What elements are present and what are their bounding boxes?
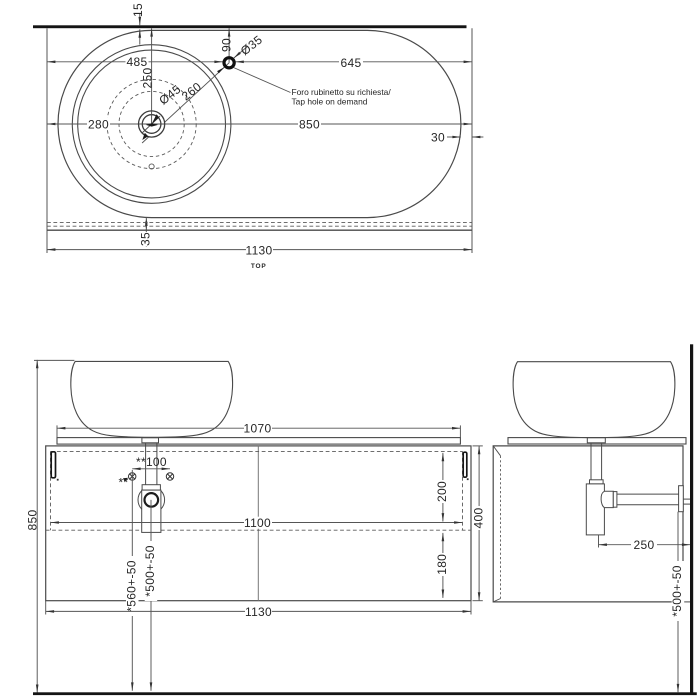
svg-text:35: 35 (138, 232, 152, 246)
svg-text:200: 200 (435, 481, 449, 502)
svg-text:485: 485 (127, 55, 148, 69)
svg-text:250: 250 (634, 538, 655, 552)
svg-text:15: 15 (131, 3, 145, 17)
svg-text:*500+-50: *500+-50 (670, 565, 684, 616)
svg-text:1070: 1070 (244, 422, 272, 436)
svg-text:280: 280 (88, 118, 109, 132)
svg-text:1130: 1130 (245, 243, 272, 257)
svg-text:*560+-50: *560+-50 (124, 560, 138, 611)
svg-text:Tap hole on demand: Tap hole on demand (292, 96, 368, 106)
svg-text:**: ** (119, 476, 129, 490)
svg-text:180: 180 (435, 554, 449, 575)
svg-text:400: 400 (471, 508, 485, 529)
svg-text:260: 260 (179, 79, 204, 103)
svg-text:**100: **100 (136, 455, 167, 469)
svg-text:*500+-50: *500+-50 (143, 545, 157, 596)
svg-text:Ø35: Ø35 (238, 33, 265, 59)
svg-text:30: 30 (431, 131, 445, 145)
svg-text:1130: 1130 (245, 605, 272, 619)
svg-text:90: 90 (219, 38, 233, 52)
svg-text:TOP: TOP (251, 263, 267, 270)
svg-text:850: 850 (299, 118, 320, 132)
svg-text:250: 250 (141, 68, 155, 89)
svg-text:645: 645 (341, 56, 362, 70)
svg-text:850: 850 (26, 510, 40, 531)
svg-text:Ø45: Ø45 (156, 82, 183, 108)
svg-text:1100: 1100 (244, 516, 271, 530)
